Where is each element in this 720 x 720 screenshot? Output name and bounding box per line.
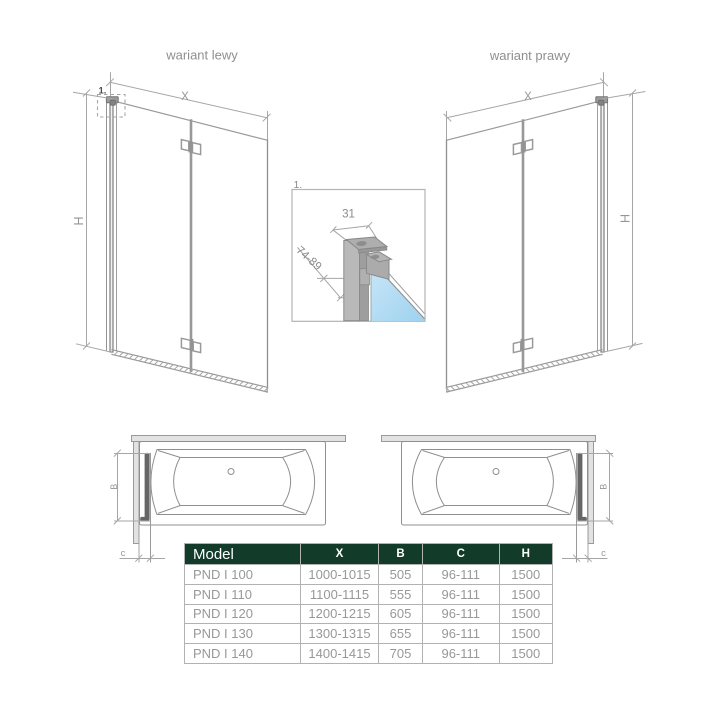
svg-text:c: c	[121, 548, 126, 559]
svg-text:wariant prawy: wariant prawy	[489, 48, 571, 63]
svg-text:31: 31	[342, 208, 355, 220]
svg-text:X: X	[524, 91, 532, 103]
svg-text:c: c	[601, 548, 606, 559]
svg-text:B: B	[599, 484, 609, 490]
svg-text:1.: 1.	[99, 86, 107, 97]
svg-text:H: H	[619, 214, 633, 223]
svg-text:H: H	[72, 216, 86, 225]
svg-text:X: X	[181, 91, 189, 103]
svg-text:wariant lewy: wariant lewy	[165, 48, 238, 63]
svg-text:1.: 1.	[294, 179, 303, 191]
svg-text:B: B	[109, 484, 119, 490]
